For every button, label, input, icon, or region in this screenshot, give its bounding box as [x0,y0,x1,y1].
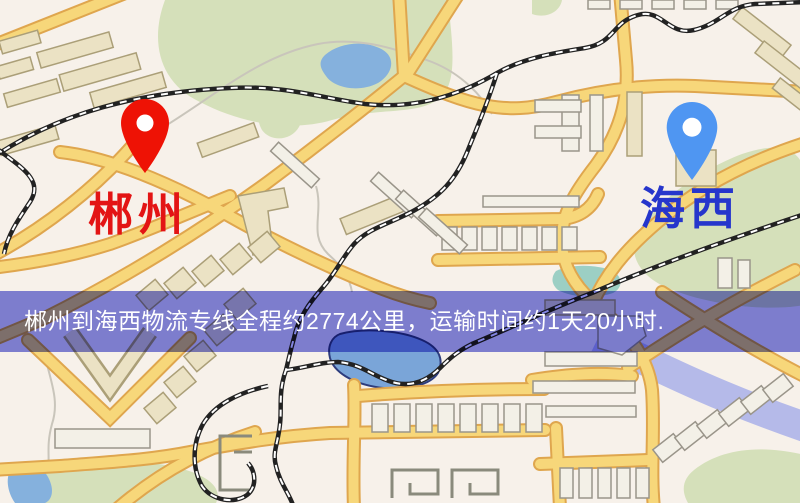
red-map-pin-icon[interactable] [121,99,169,173]
route-info-text: 郴州到海西物流专线全程约2774公里，运输时间约1天20小时. [24,291,664,352]
blue-map-pin-icon[interactable] [665,102,719,180]
map-canvas [0,0,800,503]
origin-label: 郴州 [88,178,188,243]
destination-label: 海西 [640,172,740,237]
map-view: 郴州到海西物流专线全程约2774公里，运输时间约1天20小时. 郴州 海西 [0,0,800,503]
